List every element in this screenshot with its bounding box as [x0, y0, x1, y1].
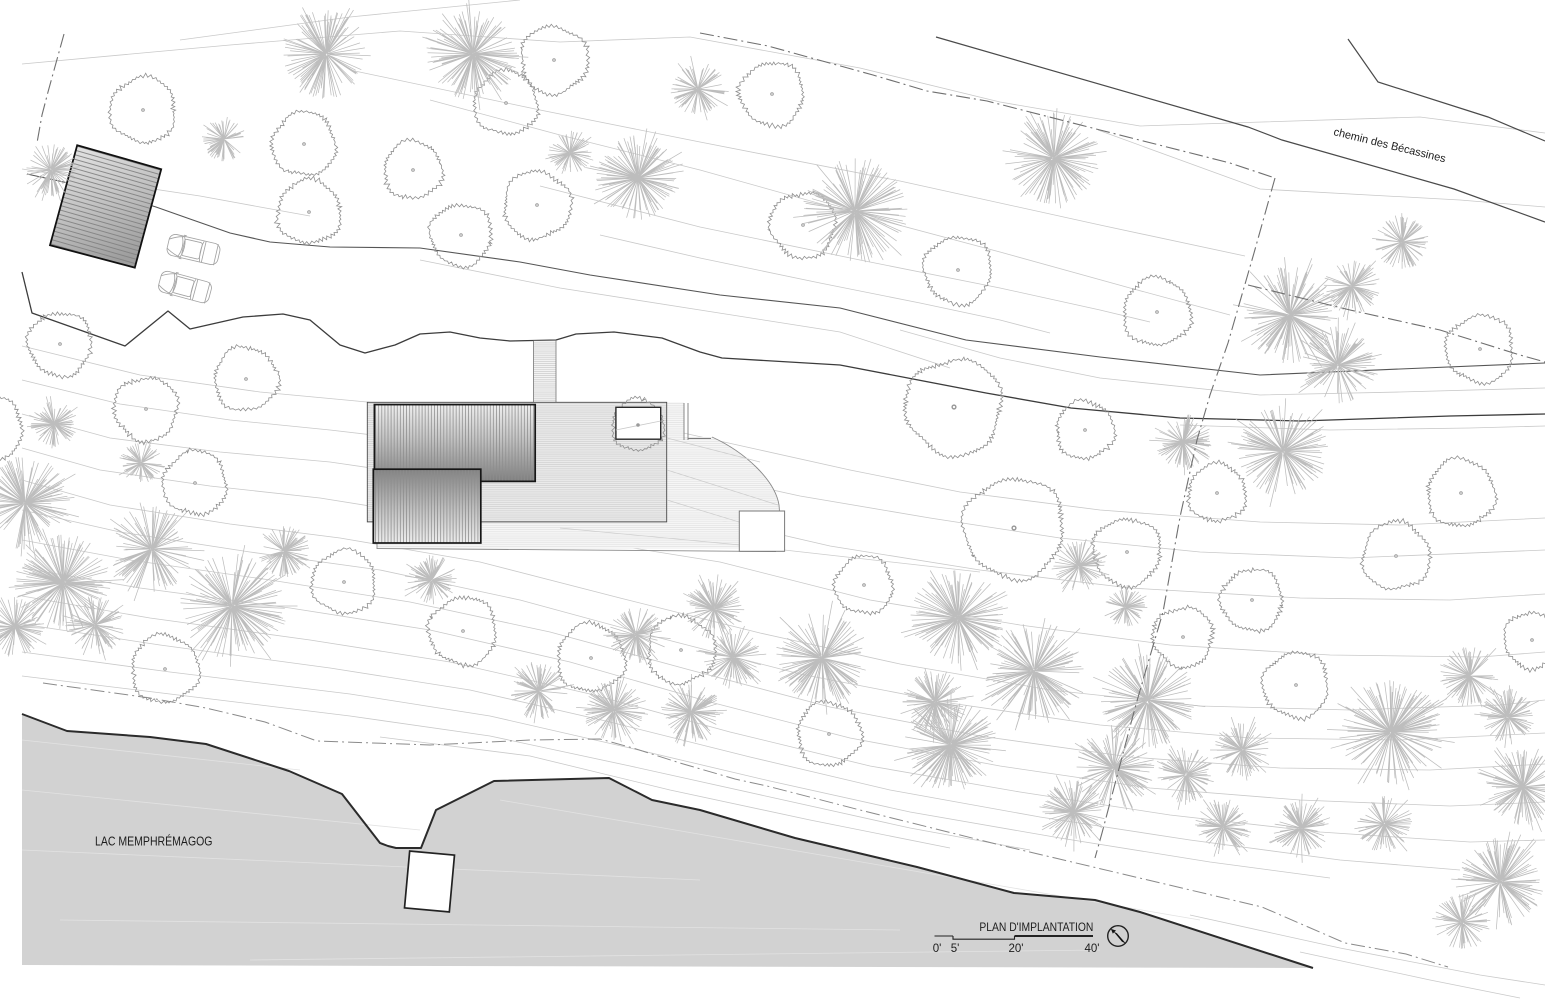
svg-text:LAC MEMPHRÉMAGOG: LAC MEMPHRÉMAGOG	[95, 834, 213, 849]
svg-text:20': 20'	[1009, 943, 1024, 955]
svg-text:PLAN D'IMPLANTATION: PLAN D'IMPLANTATION	[979, 920, 1093, 934]
svg-text:5': 5'	[951, 943, 960, 955]
svg-text:0': 0'	[933, 943, 942, 955]
svg-text:40': 40'	[1085, 943, 1100, 955]
